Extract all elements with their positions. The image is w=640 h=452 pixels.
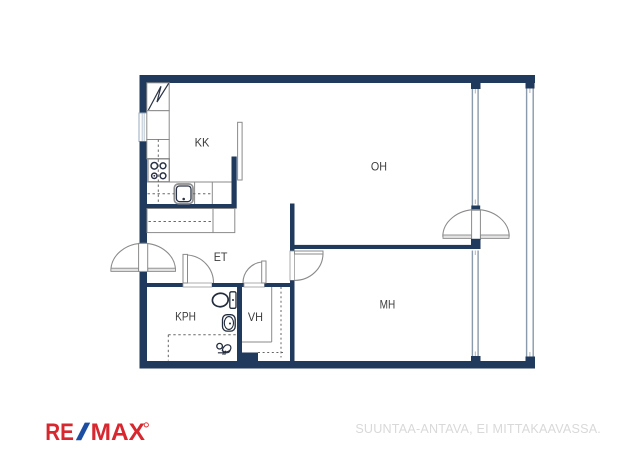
svg-text:MAX: MAX — [91, 419, 146, 446]
svg-text:KK: KK — [195, 136, 210, 150]
svg-text:ET: ET — [214, 250, 228, 264]
svg-text:VH: VH — [248, 310, 263, 324]
svg-text:OH: OH — [371, 159, 387, 173]
svg-text:MH: MH — [380, 297, 396, 311]
svg-text:SUUNTAA-ANTAVA, EI MITTAKAAVAS: SUUNTAA-ANTAVA, EI MITTAKAAVASSA. — [355, 422, 601, 436]
svg-text:RE: RE — [45, 419, 74, 446]
svg-text:KPH: KPH — [175, 310, 196, 324]
